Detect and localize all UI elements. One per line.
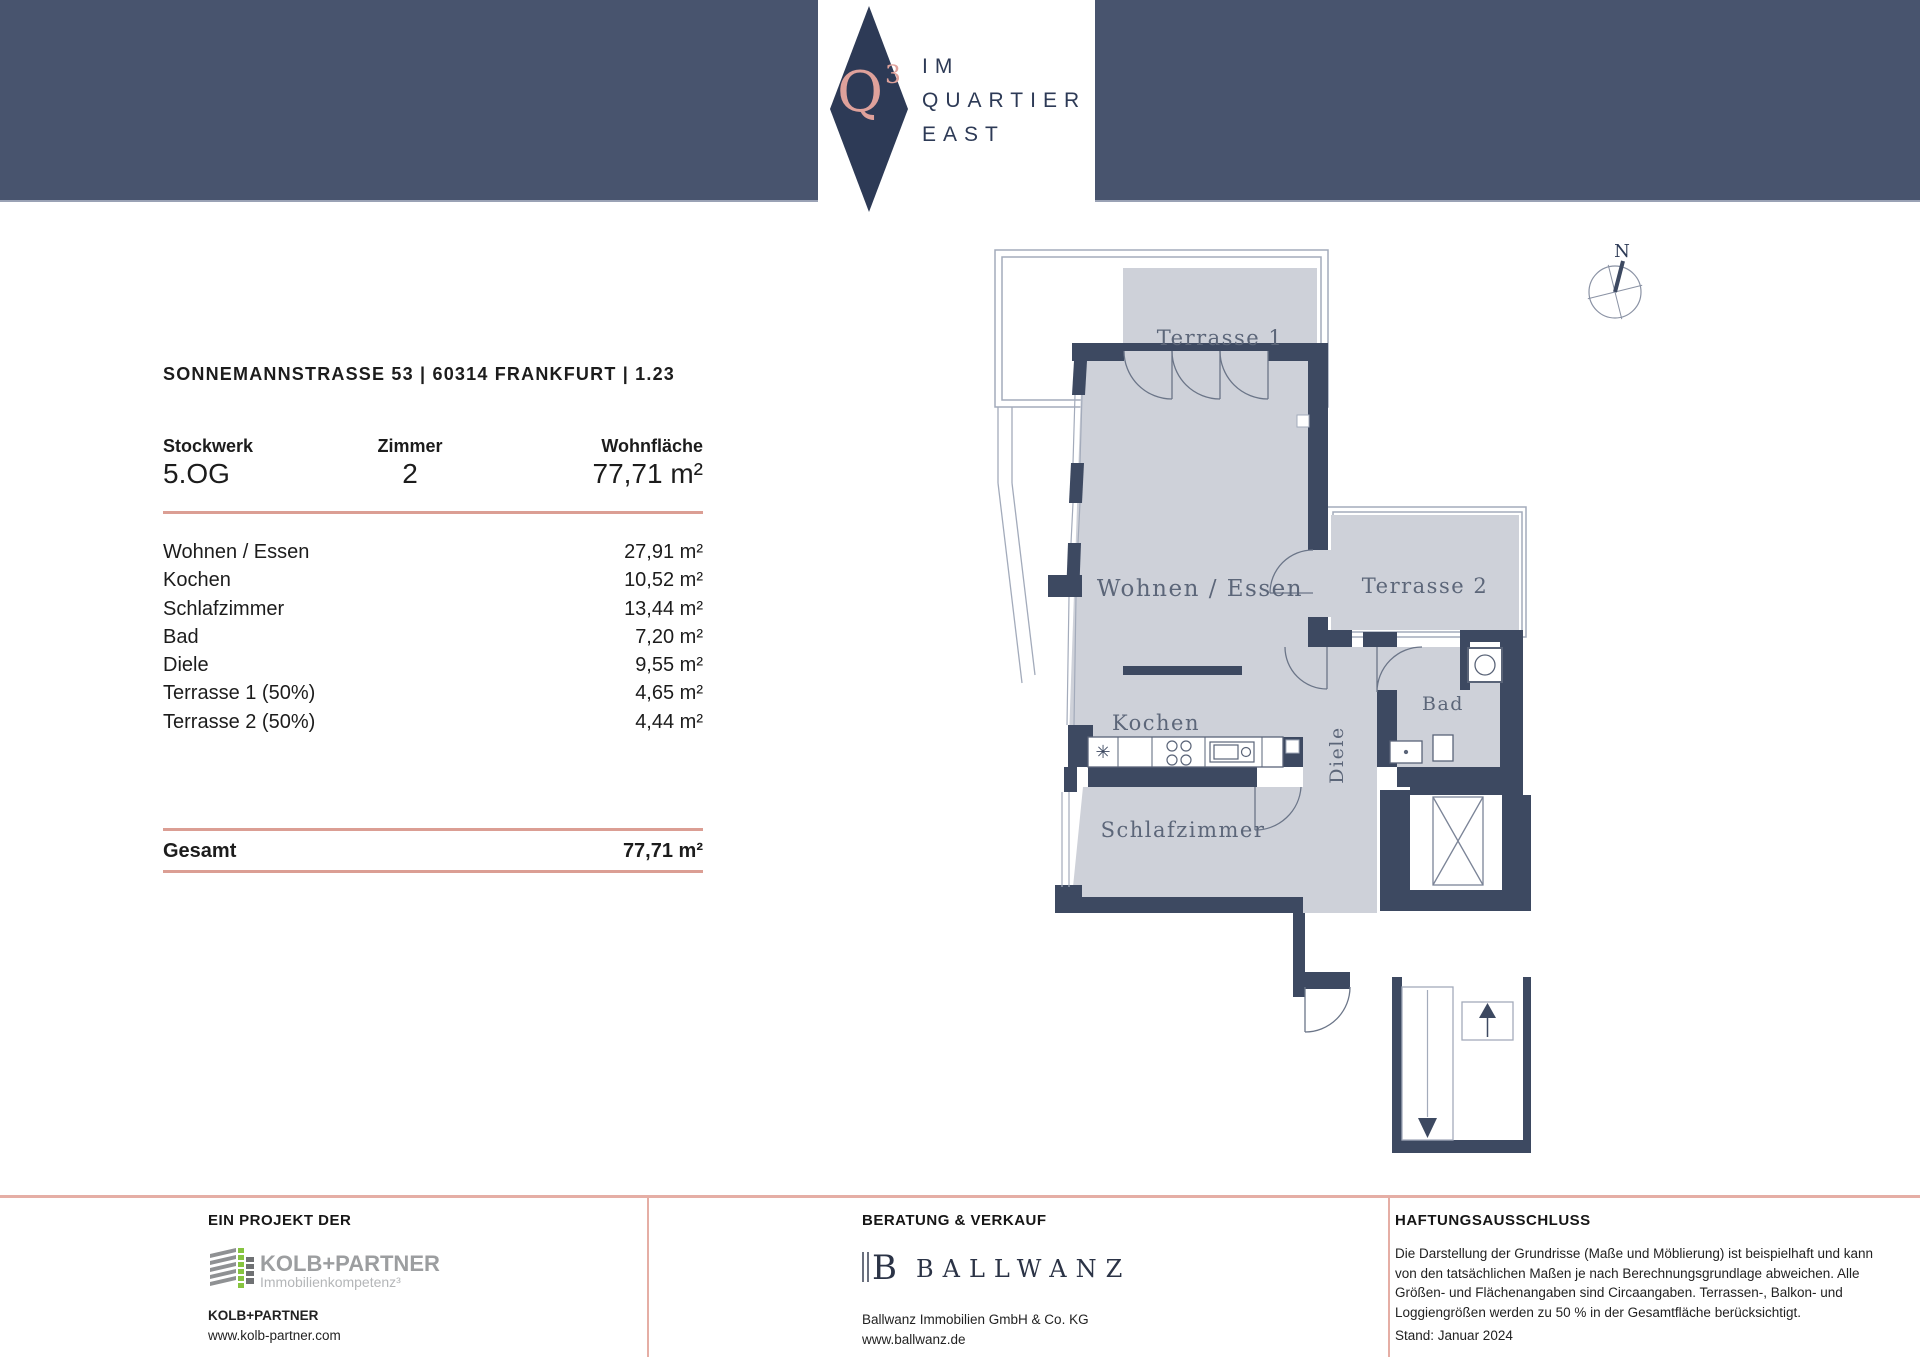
wall-niche-kitchen bbox=[1286, 740, 1299, 753]
compass-north-label: N bbox=[1614, 241, 1630, 262]
brand-line-2: QUARTIER bbox=[922, 84, 1086, 118]
room-name: Diele bbox=[163, 654, 209, 677]
room-name: Terrasse 1 (50%) bbox=[163, 682, 315, 705]
disclaimer-text: Die Darstellung der Grundrisse (Maße und… bbox=[1395, 1244, 1873, 1322]
q3-logo-letter: Q3 bbox=[830, 62, 908, 121]
room-label-terrasse2: Terrasse 2 bbox=[1362, 574, 1488, 598]
floor-value: 5.OG bbox=[163, 458, 230, 490]
room-area-list: Wohnen / Essen27,91 m² Kochen10,52 m² Sc… bbox=[163, 541, 703, 739]
room-label-schlafzimmer: Schlafzimmer bbox=[1101, 818, 1266, 842]
footer-col2-company: Ballwanz Immobilien GmbH & Co. KG bbox=[862, 1312, 1089, 1327]
kitchen-counter: ✳ bbox=[1088, 737, 1283, 767]
svg-text:KOLB+PARTNER: KOLB+PARTNER bbox=[260, 1251, 440, 1276]
footer-divider-1 bbox=[647, 1198, 649, 1357]
room-row: Kochen10,52 m² bbox=[163, 569, 703, 597]
address-title: SONNEMANNSTRASSE 53 | 60314 FRANKFURT | … bbox=[163, 364, 675, 385]
wall-niche bbox=[1297, 415, 1309, 427]
divider-line-top bbox=[163, 511, 703, 514]
area-column-header: Wohnfläche bbox=[503, 436, 703, 457]
room-area: 10,52 m² bbox=[624, 569, 703, 592]
room-row: Diele9,55 m² bbox=[163, 654, 703, 682]
room-name: Wohnen / Essen bbox=[163, 541, 309, 564]
rooms-value: 2 bbox=[330, 458, 490, 490]
total-label: Gesamt bbox=[163, 840, 236, 863]
neighbor-structure-outline bbox=[998, 407, 1035, 683]
room-row: Wohnen / Essen27,91 m² bbox=[163, 541, 703, 569]
total-value: 77,71 m² bbox=[623, 840, 703, 863]
room-area: 7,20 m² bbox=[635, 626, 703, 649]
room-name: Bad bbox=[163, 626, 199, 649]
room-label-diele: Diele bbox=[1326, 726, 1348, 783]
floorplan-drawing: ✳ bbox=[990, 245, 1560, 1160]
room-label-bad: Bad bbox=[1422, 693, 1464, 715]
footer-col1-website[interactable]: www.kolb-partner.com bbox=[208, 1328, 341, 1343]
floor-column-header: Stockwerk bbox=[163, 436, 253, 457]
room-area: 9,55 m² bbox=[635, 654, 703, 677]
stairs-up-icon bbox=[1462, 1002, 1513, 1040]
svg-text:B: B bbox=[872, 1248, 897, 1288]
total-row: Gesamt 77,71 m² bbox=[163, 840, 703, 863]
disclaimer-date: Stand: Januar 2024 bbox=[1395, 1328, 1513, 1343]
room-row: Terrasse 2 (50%)4,44 m² bbox=[163, 711, 703, 739]
svg-text:Immobilienkompetenz³: Immobilienkompetenz³ bbox=[260, 1274, 401, 1290]
room-row: Bad7,20 m² bbox=[163, 626, 703, 654]
ballwanz-logo: B BALLWANZ bbox=[860, 1246, 1140, 1288]
toilet-icon bbox=[1433, 735, 1453, 761]
footer-divider-2 bbox=[1388, 1198, 1390, 1357]
brand-line-3: EAST bbox=[922, 118, 1086, 152]
kolb-partner-logo: KOLB+PARTNER Immobilienkompetenz³ bbox=[208, 1240, 468, 1292]
rooms-column-header: Zimmer bbox=[330, 436, 490, 457]
footer-col2-website[interactable]: www.ballwanz.de bbox=[862, 1332, 966, 1347]
room-name: Kochen bbox=[163, 569, 231, 592]
stairs-icon bbox=[1402, 987, 1453, 1140]
header-bar-left bbox=[0, 0, 818, 202]
footer-top-divider bbox=[0, 1195, 1920, 1198]
footer-col1-company: KOLB+PARTNER bbox=[208, 1308, 318, 1323]
kolb-building-icon bbox=[210, 1248, 236, 1286]
floorplan-document-page: Q3 IM QUARTIER EAST SONNEMANNSTRASSE 53 … bbox=[0, 0, 1920, 1357]
area-value: 77,71 m² bbox=[503, 458, 703, 490]
header-bar-right bbox=[1095, 0, 1920, 202]
divider-line-total-bottom bbox=[163, 870, 703, 873]
q3-logo-exponent: 3 bbox=[885, 60, 901, 89]
elevator-icon bbox=[1433, 797, 1483, 885]
cooktop-icon: ✳ bbox=[1095, 742, 1110, 762]
washer-icon bbox=[1468, 648, 1502, 682]
room-area: 13,44 m² bbox=[624, 598, 703, 621]
room-row: Schlafzimmer13,44 m² bbox=[163, 598, 703, 626]
room-label-kochen: Kochen bbox=[1112, 711, 1200, 735]
svg-text:BALLWANZ: BALLWANZ bbox=[916, 1255, 1131, 1283]
room-name: Schlafzimmer bbox=[163, 598, 284, 621]
divider-line-total-top bbox=[163, 828, 703, 831]
compass-icon: N bbox=[1575, 235, 1665, 335]
room-name: Terrasse 2 (50%) bbox=[163, 711, 315, 734]
room-row: Terrasse 1 (50%)4,65 m² bbox=[163, 682, 703, 710]
footer-col2-heading: BERATUNG & VERKAUF bbox=[862, 1212, 1047, 1229]
room-label-terrasse1: Terrasse 1 bbox=[1157, 326, 1283, 350]
brand-wordmark: IM QUARTIER EAST bbox=[922, 50, 1086, 152]
brand-line-1: IM bbox=[922, 50, 1086, 84]
room-area: 4,44 m² bbox=[635, 711, 703, 734]
room-area: 27,91 m² bbox=[624, 541, 703, 564]
room-label-wohnen-essen: Wohnen / Essen bbox=[1097, 576, 1303, 602]
footer-col3-heading: HAFTUNGSAUSSCHLUSS bbox=[1395, 1212, 1591, 1229]
room-area: 4,65 m² bbox=[635, 682, 703, 705]
footer-col1-heading: EIN PROJEKT DER bbox=[208, 1212, 351, 1229]
